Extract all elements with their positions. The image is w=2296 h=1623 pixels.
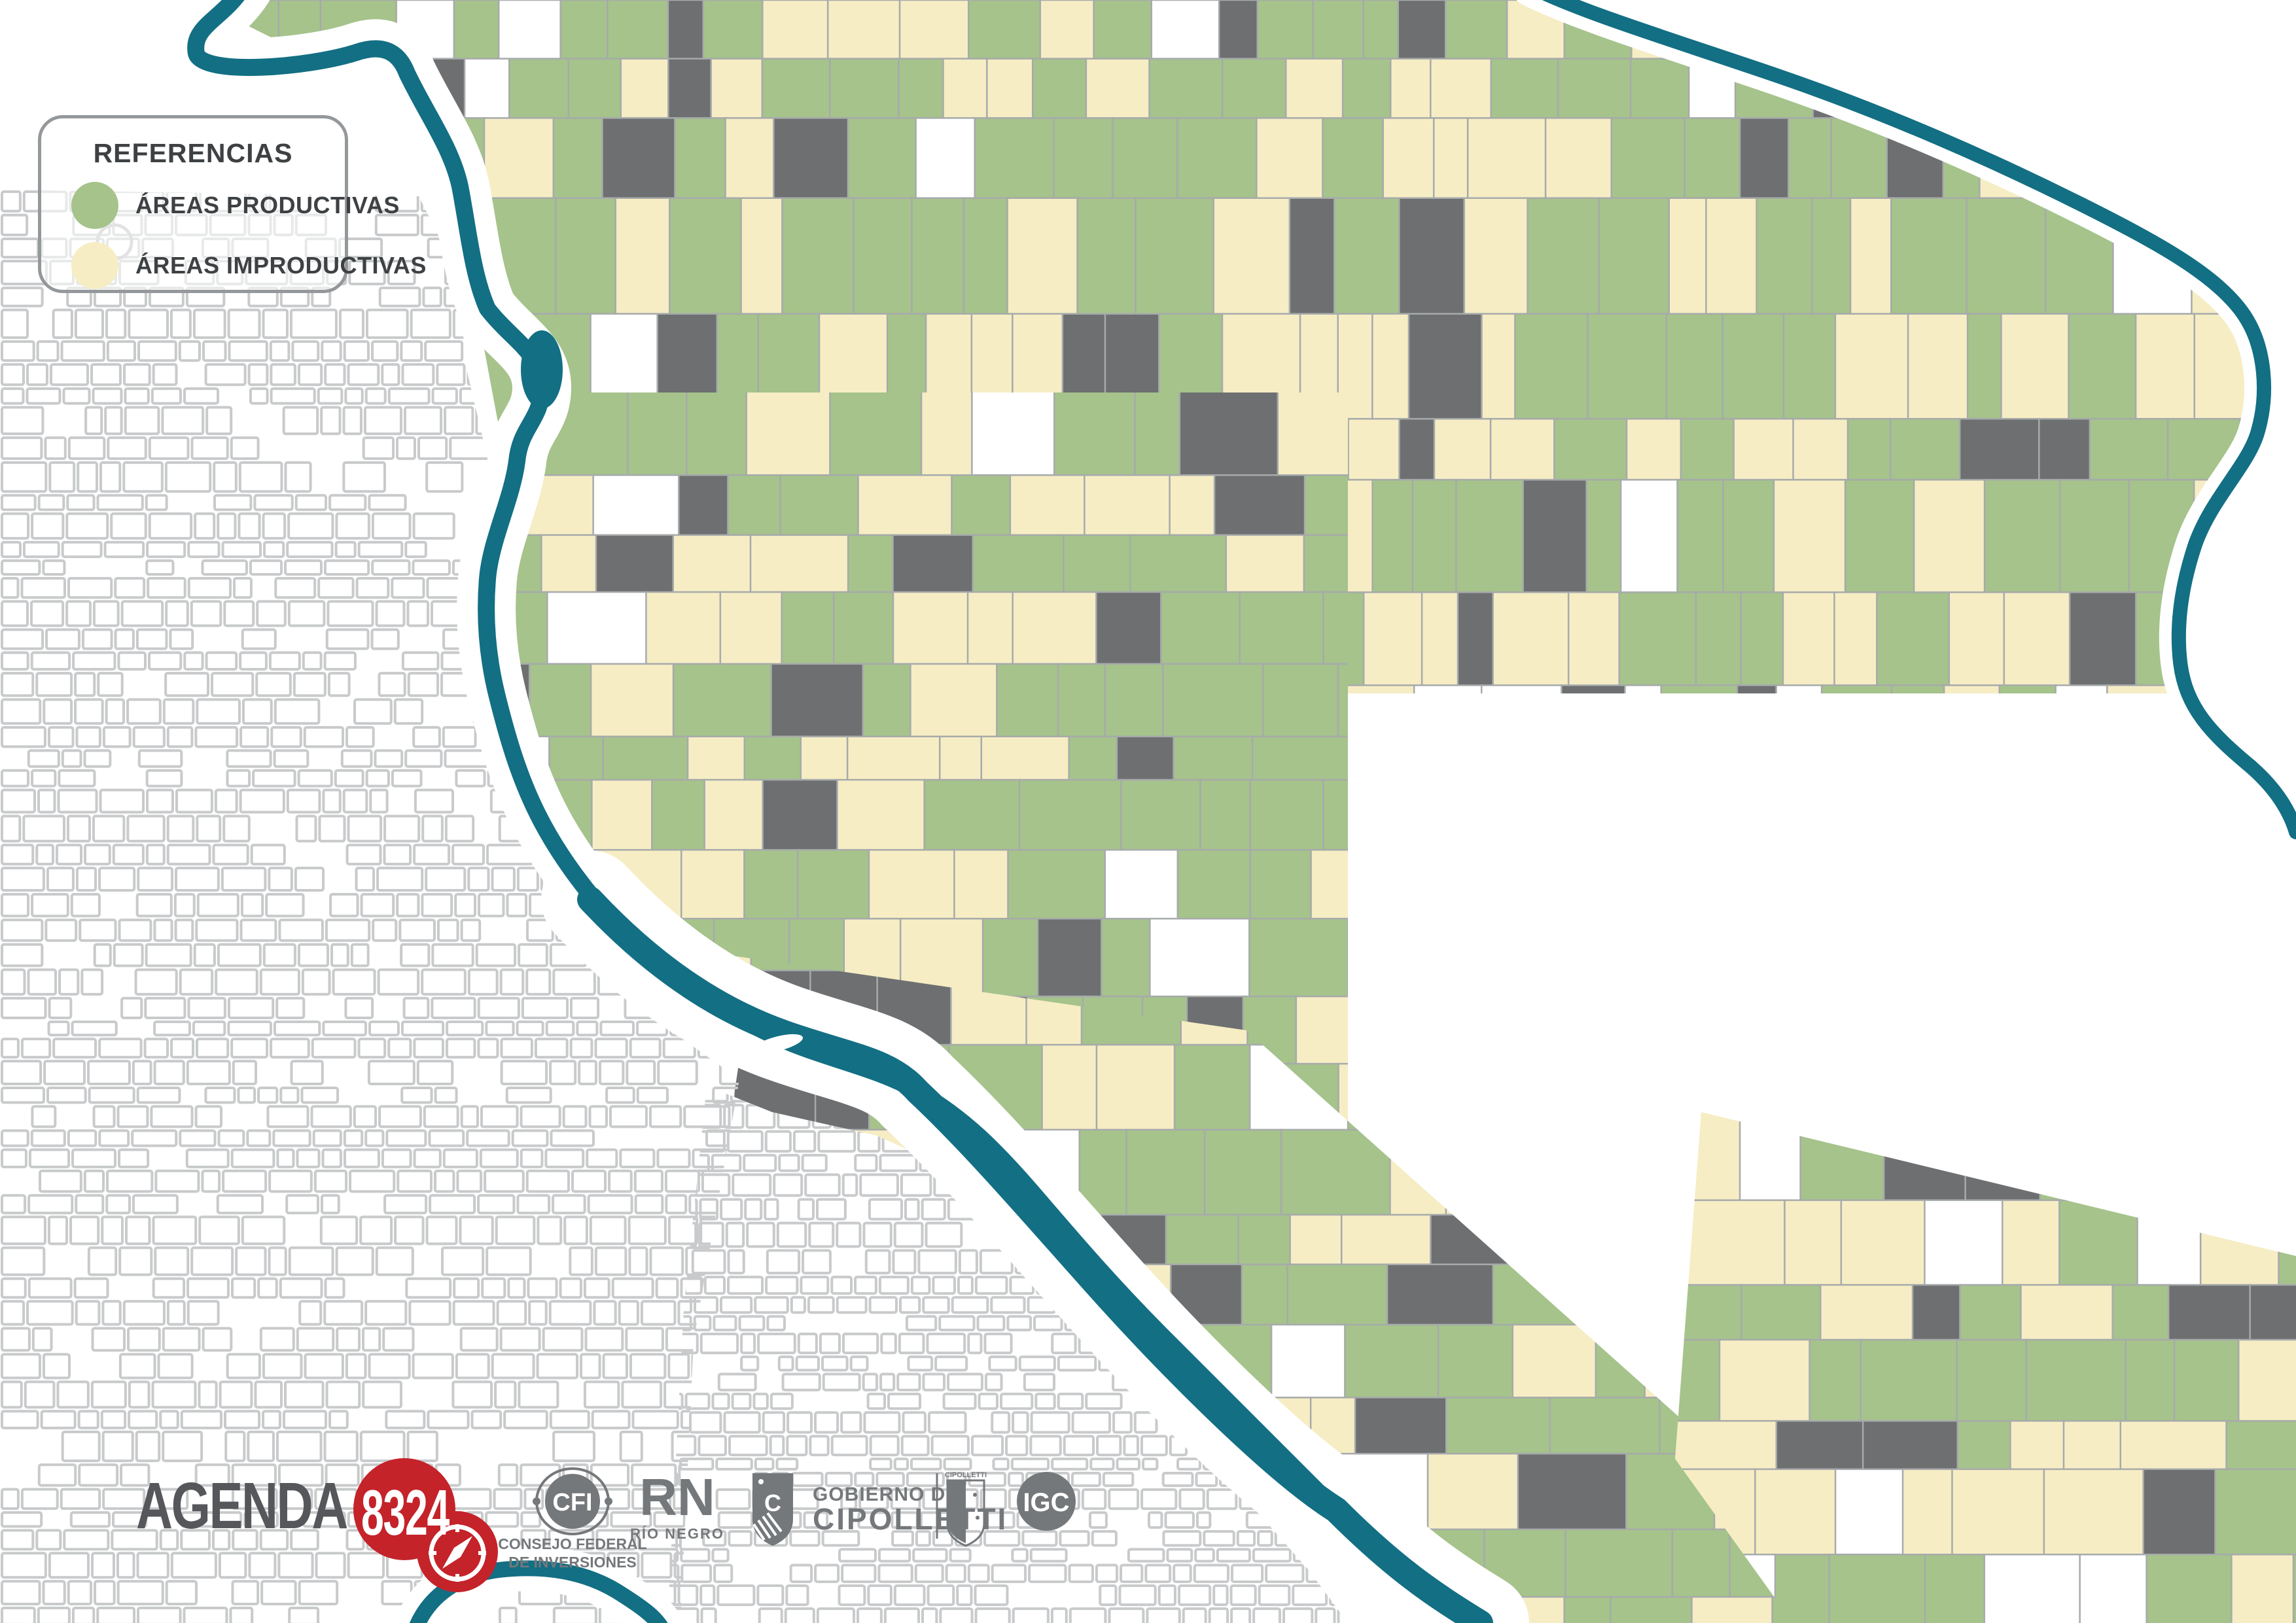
svg-text:CONSEJO FEDERAL: CONSEJO FEDERAL xyxy=(498,1535,646,1552)
svg-text:DE INVERSIONES: DE INVERSIONES xyxy=(508,1554,637,1571)
map-stage: REFERENCIAS ÁREAS PRODUCTIVAS ÁREAS IMPR… xyxy=(0,0,2296,1623)
cfi-logo: CFI CONSEJO FEDERAL DE INVERSIONES xyxy=(498,1469,646,1571)
svg-text:C: C xyxy=(764,1490,781,1516)
svg-text:AGENDA: AGENDA xyxy=(136,1469,347,1543)
rio-negro-logo: RN RÍO NEGRO xyxy=(630,1468,724,1542)
svg-text:IGC: IGC xyxy=(1023,1488,1069,1517)
svg-text:RÍO NEGRO: RÍO NEGRO xyxy=(630,1526,724,1542)
svg-text:CFI: CFI xyxy=(552,1489,592,1516)
svg-text:RN: RN xyxy=(639,1468,715,1526)
gobierno-cipolletti-logo: C GOBIERNO DE CIPOLLETTI CIPOLLETTI xyxy=(752,1471,1008,1546)
agenda-8324-logo: AGENDA 8324 xyxy=(136,1458,498,1592)
igc-logo: IGC xyxy=(1017,1472,1076,1531)
footer-logos: AGENDA 8324 CFI CONSEJO FEDERAL DE INVER… xyxy=(0,0,2296,1623)
svg-text:CIPOLLETTI: CIPOLLETTI xyxy=(945,1471,987,1479)
